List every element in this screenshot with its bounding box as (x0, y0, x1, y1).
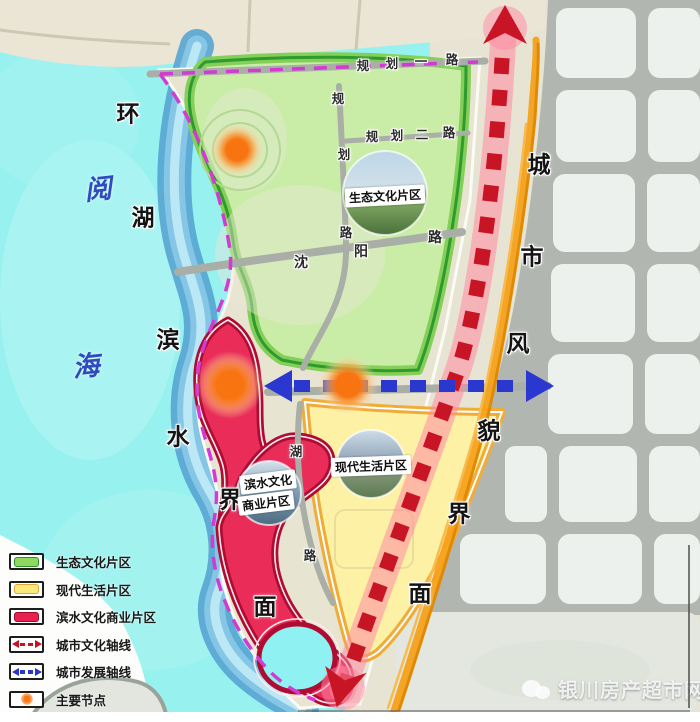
road-label-char: 规 (332, 93, 345, 106)
east-interface-char: 城 (528, 154, 551, 177)
legend-item-eco: 生态文化片区 (0, 548, 168, 576)
road-label-char: 划 (386, 58, 399, 71)
road-label-char: 湖 (290, 446, 303, 459)
east-interface-char: 市 (521, 246, 544, 269)
legend-label: 现代生活片区 (56, 580, 131, 599)
frame-bottom-edge (298, 710, 690, 712)
west-interface-char: 湖 (132, 207, 155, 230)
legend-label: 城市文化轴线 (56, 635, 131, 654)
double-arrow-dashed-icon (9, 636, 44, 653)
road-label-char: 阳 (354, 244, 368, 258)
legend: 生态文化片区 现代生活片区 滨水文化商业片区 城市文化轴线 城市发展轴线 主要节… (0, 548, 168, 713)
road-label-char: 一 (415, 56, 428, 69)
bottom-margin (0, 712, 700, 722)
legend-item-node: 主要节点 (0, 686, 168, 714)
west-interface-char: 滨 (157, 329, 180, 352)
road-label-char: 规 (357, 60, 370, 73)
east-interface-char: 界 (448, 503, 471, 526)
legend-label: 生态文化片区 (56, 552, 131, 571)
legend-item-culture-axis: 城市文化轴线 (0, 631, 168, 659)
zone-label-modern: 现代生活片区 (331, 455, 412, 477)
road-label-char: 路 (443, 127, 456, 140)
planning-map: 环 湖 滨 水 界 面 城 市 风 貌 界 面 阅 海 规 划 一 路 规 划 … (0, 0, 700, 722)
road-label-char: 路 (304, 550, 317, 563)
legend-item-development-axis: 城市发展轴线 (0, 658, 168, 686)
zone-swatch-icon (9, 608, 44, 625)
legend-label: 城市发展轴线 (56, 662, 131, 681)
road-label-char: 划 (338, 149, 351, 162)
east-interface-char: 貌 (478, 420, 501, 443)
frame-right-edge (688, 545, 690, 708)
west-interface-char: 水 (167, 426, 190, 449)
road-label-char: 二 (416, 129, 429, 142)
east-interface-char: 面 (409, 583, 432, 606)
double-arrow-dashed-icon (9, 663, 44, 680)
lake-name-char: 海 (71, 352, 101, 382)
road-label-char: 路 (340, 227, 353, 240)
west-interface-char: 环 (117, 103, 140, 126)
node-swatch-icon (9, 691, 44, 708)
legend-label: 滨水文化商业片区 (56, 607, 156, 626)
watermark: 银川房产超市网 (522, 674, 700, 703)
zone-swatch-icon (9, 553, 44, 570)
road-label-char: 划 (391, 130, 404, 143)
road-label-char: 路 (428, 230, 442, 244)
legend-label: 主要节点 (56, 690, 106, 709)
east-interface-char: 风 (507, 333, 530, 356)
legend-item-waterfront: 滨水文化商业片区 (0, 603, 168, 631)
lake-name-char: 阅 (83, 175, 113, 205)
zone-swatch-icon (9, 581, 44, 598)
legend-item-modern: 现代生活片区 (0, 576, 168, 604)
west-interface-char: 面 (254, 596, 277, 619)
road-label-char: 规 (366, 131, 379, 144)
road-label-char: 沈 (294, 255, 308, 269)
road-label-char: 路 (446, 54, 459, 67)
site-logo-icon (522, 676, 552, 702)
watermark-text: 银川房产超市网 (558, 674, 700, 703)
